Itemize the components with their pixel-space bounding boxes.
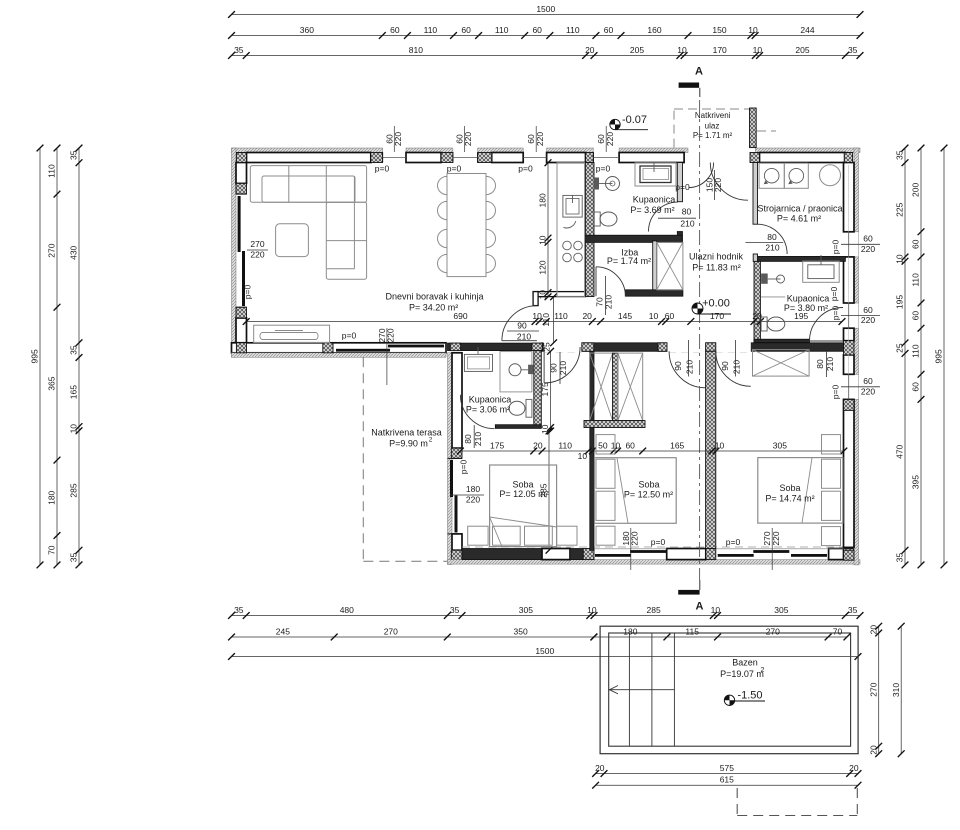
svg-text:20: 20 (595, 763, 605, 773)
svg-text:35: 35 (895, 150, 905, 160)
svg-text:170: 170 (713, 45, 727, 55)
svg-text:2: 2 (761, 667, 765, 674)
svg-text:270: 270 (250, 239, 264, 249)
svg-text:35: 35 (234, 45, 244, 55)
svg-text:35: 35 (69, 150, 79, 160)
svg-text:35: 35 (234, 605, 244, 615)
svg-text:995: 995 (934, 349, 944, 363)
svg-text:20: 20 (585, 45, 595, 55)
svg-text:165: 165 (69, 385, 79, 399)
svg-text:165: 165 (670, 441, 684, 451)
svg-text:225: 225 (895, 202, 905, 216)
svg-text:200: 200 (911, 183, 921, 197)
svg-text:P= 1.74 m²: P= 1.74 m² (607, 256, 651, 266)
svg-text:35: 35 (69, 345, 79, 355)
svg-text:220: 220 (713, 178, 723, 192)
svg-text:P= 1.71 m²: P= 1.71 m² (693, 131, 733, 140)
svg-text:p=0: p=0 (243, 285, 253, 300)
svg-text:ulaz: ulaz (705, 121, 720, 130)
svg-text:P= 4.61 m²: P= 4.61 m² (777, 214, 821, 224)
svg-text:615: 615 (720, 775, 734, 785)
svg-text:80: 80 (682, 207, 692, 217)
svg-text:220: 220 (466, 495, 480, 505)
svg-text:Ulazni hodnik: Ulazni hodnik (689, 252, 744, 262)
svg-text:P= 34.20 m²: P= 34.20 m² (409, 303, 458, 313)
svg-text:20: 20 (752, 311, 762, 321)
svg-text:220: 220 (463, 132, 473, 146)
svg-text:P= 12.50 m²: P= 12.50 m² (624, 490, 673, 500)
svg-text:Strojarnica / praonica: Strojarnica / praonica (757, 204, 842, 214)
svg-text:p=0: p=0 (675, 182, 690, 192)
svg-text:220: 220 (861, 244, 875, 254)
svg-text:210: 210 (680, 218, 694, 228)
svg-text:350: 350 (514, 627, 528, 637)
svg-text:p=0: p=0 (831, 240, 841, 255)
svg-text:10: 10 (753, 45, 763, 55)
svg-text:P= 3.06 m²: P= 3.06 m² (466, 405, 510, 415)
svg-text:175: 175 (490, 441, 504, 451)
svg-text:2: 2 (429, 437, 433, 444)
svg-text:110: 110 (911, 344, 921, 358)
svg-text:Soba: Soba (638, 480, 659, 490)
svg-text:10: 10 (69, 424, 79, 434)
svg-text:Dnevni boravak i kuhinja: Dnevni boravak i kuhinja (385, 292, 483, 302)
svg-text:285: 285 (647, 605, 661, 615)
svg-text:10: 10 (895, 254, 905, 264)
svg-text:205: 205 (795, 45, 809, 55)
svg-text:p=0: p=0 (518, 164, 533, 174)
svg-text:10: 10 (649, 311, 659, 321)
svg-text:60: 60 (532, 25, 542, 35)
svg-text:Soba: Soba (779, 483, 800, 493)
svg-text:p=0: p=0 (375, 164, 390, 174)
svg-text:270: 270 (766, 627, 780, 637)
svg-text:10: 10 (578, 451, 588, 461)
svg-text:305: 305 (774, 605, 788, 615)
svg-text:p=0: p=0 (342, 331, 357, 341)
svg-text:10: 10 (711, 605, 721, 615)
svg-text:220: 220 (250, 250, 264, 260)
svg-text:60: 60 (863, 305, 873, 315)
svg-text:1500: 1500 (535, 646, 554, 656)
svg-text:p=0: p=0 (459, 460, 469, 475)
svg-text:90: 90 (517, 321, 527, 331)
svg-text:60: 60 (390, 25, 400, 35)
svg-text:210: 210 (517, 332, 531, 342)
svg-text:35: 35 (848, 45, 858, 55)
svg-text:305: 305 (773, 441, 787, 451)
svg-text:110: 110 (554, 311, 568, 321)
svg-text:220: 220 (386, 328, 396, 342)
svg-text:110: 110 (495, 25, 509, 35)
svg-text:10: 10 (538, 290, 548, 300)
svg-text:35: 35 (895, 553, 905, 563)
svg-text:p=0: p=0 (726, 537, 741, 547)
svg-text:p=0: p=0 (831, 385, 841, 400)
svg-text:10: 10 (587, 605, 597, 615)
svg-text:P=19.07 m: P=19.07 m (720, 669, 764, 679)
svg-text:220: 220 (535, 132, 545, 146)
svg-text:1500: 1500 (536, 4, 555, 14)
svg-text:35: 35 (848, 605, 858, 615)
svg-text:80: 80 (767, 232, 777, 242)
svg-text:10: 10 (538, 235, 548, 245)
svg-text:90: 90 (549, 363, 559, 373)
svg-text:210: 210 (731, 360, 741, 374)
svg-text:Kupaonica: Kupaonica (469, 395, 512, 405)
svg-text:180: 180 (47, 490, 57, 504)
svg-text:p=0: p=0 (596, 164, 611, 174)
svg-text:480: 480 (340, 605, 354, 615)
svg-text:Kupaonica: Kupaonica (787, 294, 830, 304)
svg-text:220: 220 (393, 132, 403, 146)
svg-text:A: A (696, 601, 704, 613)
svg-text:195: 195 (895, 295, 905, 309)
svg-text:310: 310 (891, 683, 901, 697)
svg-text:270: 270 (47, 243, 57, 257)
svg-text:A: A (695, 66, 703, 78)
svg-text:110: 110 (911, 273, 921, 287)
svg-text:10: 10 (611, 441, 621, 451)
svg-text:210: 210 (473, 432, 483, 446)
svg-text:270: 270 (384, 627, 398, 637)
svg-text:470: 470 (895, 444, 905, 458)
svg-text:210: 210 (825, 357, 835, 371)
svg-text:Natkriveni: Natkriveni (695, 111, 731, 120)
svg-text:180: 180 (466, 484, 480, 494)
svg-text:35: 35 (69, 553, 79, 563)
svg-text:20: 20 (869, 745, 879, 755)
svg-text:150: 150 (712, 25, 726, 35)
svg-text:35: 35 (450, 605, 460, 615)
svg-text:220: 220 (771, 531, 781, 545)
svg-text:220: 220 (629, 531, 639, 545)
svg-text:220: 220 (605, 132, 615, 146)
svg-text:10: 10 (677, 45, 687, 55)
svg-text:-0.07: -0.07 (622, 114, 647, 126)
svg-text:20: 20 (869, 625, 879, 635)
svg-text:P= 11.83 m²: P= 11.83 m² (692, 263, 741, 273)
svg-text:25: 25 (895, 343, 905, 353)
svg-text:P= 12.05 m²: P= 12.05 m² (499, 489, 548, 499)
svg-text:20: 20 (533, 441, 543, 451)
svg-text:115: 115 (685, 627, 699, 637)
svg-text:Bazen: Bazen (732, 658, 758, 668)
svg-text:60: 60 (863, 234, 873, 244)
svg-text:60: 60 (625, 441, 635, 451)
svg-text:70: 70 (833, 627, 843, 637)
svg-text:10: 10 (748, 25, 758, 35)
svg-text:110: 110 (424, 25, 438, 35)
svg-text:210: 210 (765, 243, 779, 253)
svg-text:80: 80 (815, 359, 825, 369)
svg-text:P= 14.74 m²: P= 14.74 m² (765, 494, 814, 504)
svg-text:270: 270 (869, 682, 879, 696)
svg-text:245: 245 (276, 627, 290, 637)
svg-text:25: 25 (542, 342, 552, 352)
svg-text:210: 210 (685, 360, 695, 374)
svg-text:995: 995 (30, 349, 40, 363)
svg-text:175: 175 (540, 382, 550, 396)
svg-text:20: 20 (849, 763, 859, 773)
svg-text:110: 110 (558, 441, 572, 451)
svg-text:170: 170 (710, 311, 724, 321)
svg-text:80: 80 (463, 434, 473, 444)
svg-text:210: 210 (604, 295, 614, 309)
svg-text:205: 205 (630, 45, 644, 55)
svg-text:Kupaonica: Kupaonica (633, 195, 676, 205)
svg-text:p=0: p=0 (829, 287, 839, 302)
svg-text:60: 60 (863, 376, 873, 386)
svg-text:10: 10 (540, 424, 550, 434)
svg-text:285: 285 (69, 483, 79, 497)
svg-text:244: 244 (800, 25, 814, 35)
svg-text:90: 90 (720, 361, 730, 371)
svg-text:220: 220 (861, 315, 875, 325)
svg-text:60: 60 (911, 382, 921, 392)
svg-text:-1.50: -1.50 (737, 690, 762, 702)
svg-text:305: 305 (519, 605, 533, 615)
svg-text:160: 160 (647, 25, 661, 35)
svg-text:P= 3.80 m²: P= 3.80 m² (784, 303, 828, 313)
svg-text:180: 180 (538, 193, 548, 207)
svg-text:180: 180 (623, 627, 637, 637)
svg-text:90: 90 (673, 361, 683, 371)
svg-text:430: 430 (69, 245, 79, 259)
svg-text:110: 110 (541, 313, 551, 327)
svg-text:365: 365 (47, 376, 57, 390)
svg-text:70: 70 (47, 545, 57, 555)
svg-text:810: 810 (409, 45, 423, 55)
svg-text:60: 60 (665, 311, 675, 321)
svg-text:60: 60 (604, 25, 614, 35)
svg-text:60: 60 (461, 25, 471, 35)
svg-text:120: 120 (538, 260, 548, 274)
svg-text:110: 110 (47, 164, 57, 178)
svg-text:50: 50 (598, 441, 608, 451)
svg-text:395: 395 (911, 475, 921, 489)
svg-text:+0.00: +0.00 (702, 298, 730, 310)
svg-text:Soba: Soba (512, 480, 533, 490)
svg-text:p=0: p=0 (447, 164, 462, 174)
svg-text:60: 60 (911, 311, 921, 321)
svg-text:220: 220 (861, 386, 875, 396)
svg-text:P=9.90 m: P=9.90 m (389, 438, 428, 448)
svg-text:360: 360 (300, 25, 314, 35)
svg-text:210: 210 (558, 361, 568, 375)
svg-text:p=0: p=0 (651, 537, 666, 547)
svg-text:110: 110 (566, 25, 580, 35)
svg-text:575: 575 (720, 763, 734, 773)
svg-text:145: 145 (618, 311, 632, 321)
svg-text:60: 60 (911, 239, 921, 249)
svg-text:20: 20 (582, 311, 592, 321)
svg-text:10: 10 (715, 441, 725, 451)
svg-text:P= 3.69 m²: P= 3.69 m² (630, 205, 674, 215)
